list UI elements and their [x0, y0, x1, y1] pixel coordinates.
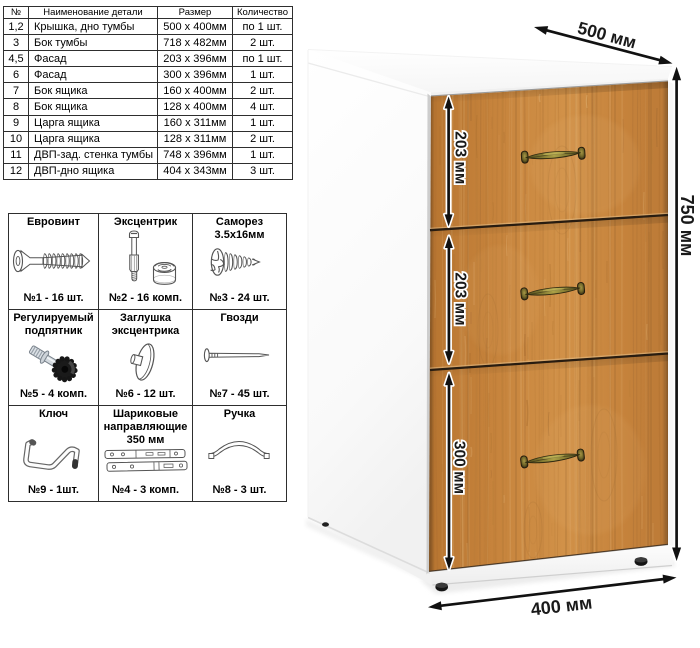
svg-text:300 мм: 300 мм	[450, 441, 467, 494]
svg-text:203 мм: 203 мм	[451, 131, 468, 184]
svg-text:750 мм: 750 мм	[677, 195, 697, 257]
svg-text:203 мм: 203 мм	[451, 272, 468, 325]
